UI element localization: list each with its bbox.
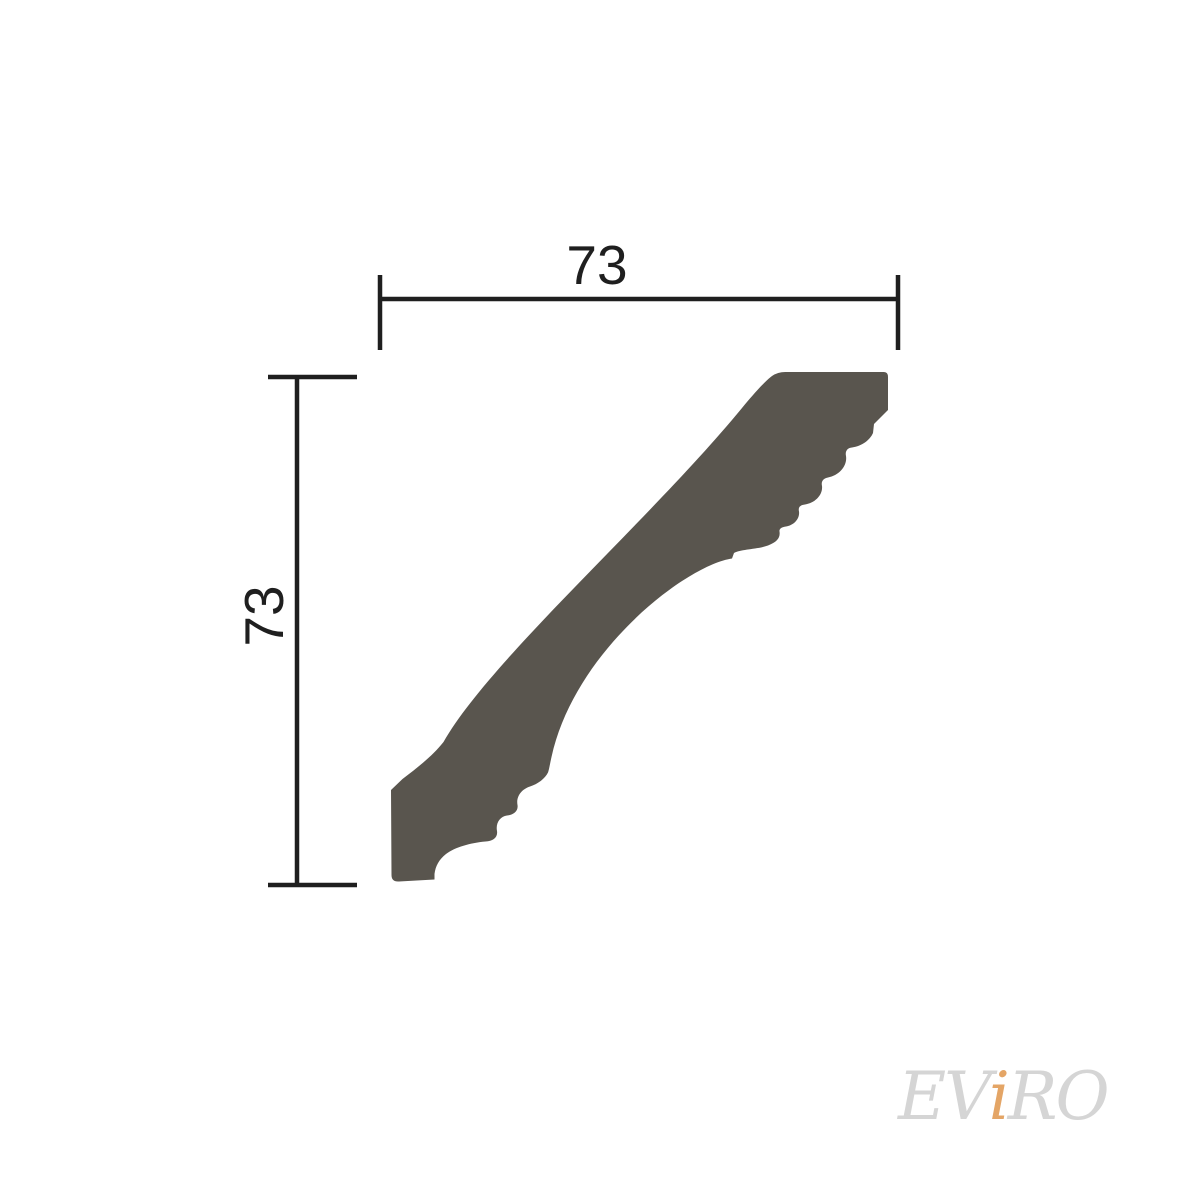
watermark: EViRO: [898, 1052, 1158, 1142]
watermark-text-i: i: [989, 1058, 1008, 1135]
height-dimension: 73: [233, 377, 357, 885]
diagram-canvas: 73 73 EViRO: [0, 0, 1182, 1182]
molding-profile-shape: [391, 372, 888, 882]
watermark-text-ro: RO: [1008, 1058, 1108, 1135]
molding-profile-diagram: 73 73: [0, 0, 1182, 1182]
watermark-text-ev: EV: [898, 1058, 989, 1135]
width-dim-label: 73: [566, 234, 627, 296]
height-dim-label: 73: [233, 585, 295, 646]
width-dimension: 73: [380, 234, 898, 350]
